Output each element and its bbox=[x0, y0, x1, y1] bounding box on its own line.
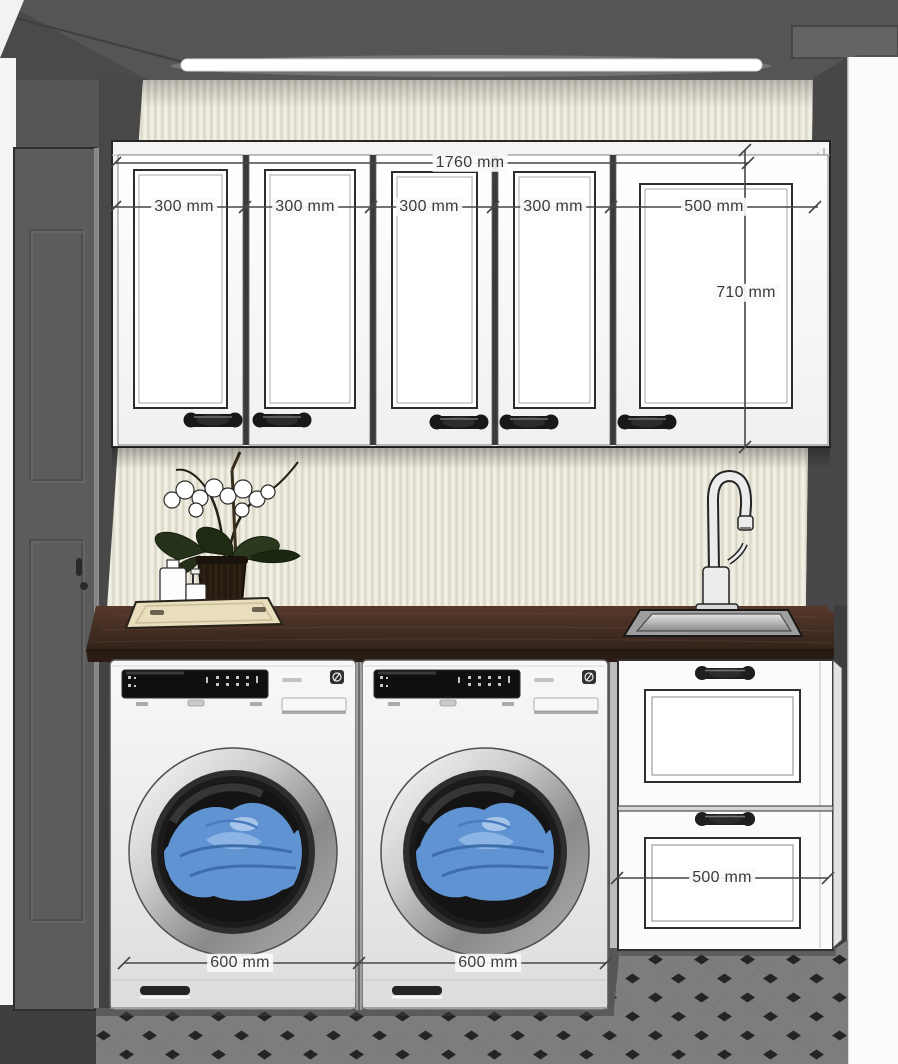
cabinet-handle bbox=[618, 415, 677, 430]
led-strip-light bbox=[171, 55, 771, 77]
dim-label-washer-1: 600 mm bbox=[207, 954, 273, 972]
dim-label-cabinet-height: 710 mm bbox=[713, 284, 779, 302]
dim-label-total-width: 1760 mm bbox=[433, 154, 508, 172]
cabinet-handle bbox=[500, 415, 559, 430]
interior-door bbox=[14, 148, 99, 1010]
drawer-handle bbox=[695, 666, 755, 680]
ceiling-cornice bbox=[792, 26, 898, 58]
dim-label-door-2: 300 mm bbox=[272, 198, 338, 216]
dim-label-base-drawer: 500 mm bbox=[689, 869, 755, 887]
dim-label-door-5: 500 mm bbox=[681, 198, 747, 216]
base-cabinet bbox=[610, 660, 842, 950]
sink bbox=[624, 610, 802, 636]
drawer-handle bbox=[695, 812, 755, 826]
wall-cabinet bbox=[112, 141, 830, 469]
dim-label-door-4: 300 mm bbox=[520, 198, 586, 216]
dim-label-door-3: 300 mm bbox=[396, 198, 462, 216]
laundry-room-render: 1760 mm 300 mm 300 mm 300 mm 300 mm 500 … bbox=[0, 0, 898, 1064]
dim-label-washer-2: 600 mm bbox=[455, 954, 521, 972]
cabinet-handle bbox=[184, 413, 243, 428]
doorway-opening bbox=[848, 57, 898, 1064]
tray bbox=[126, 598, 282, 628]
cabinet-handle bbox=[430, 415, 489, 430]
cabinet-handle bbox=[253, 413, 312, 428]
dim-label-door-1: 300 mm bbox=[151, 198, 217, 216]
